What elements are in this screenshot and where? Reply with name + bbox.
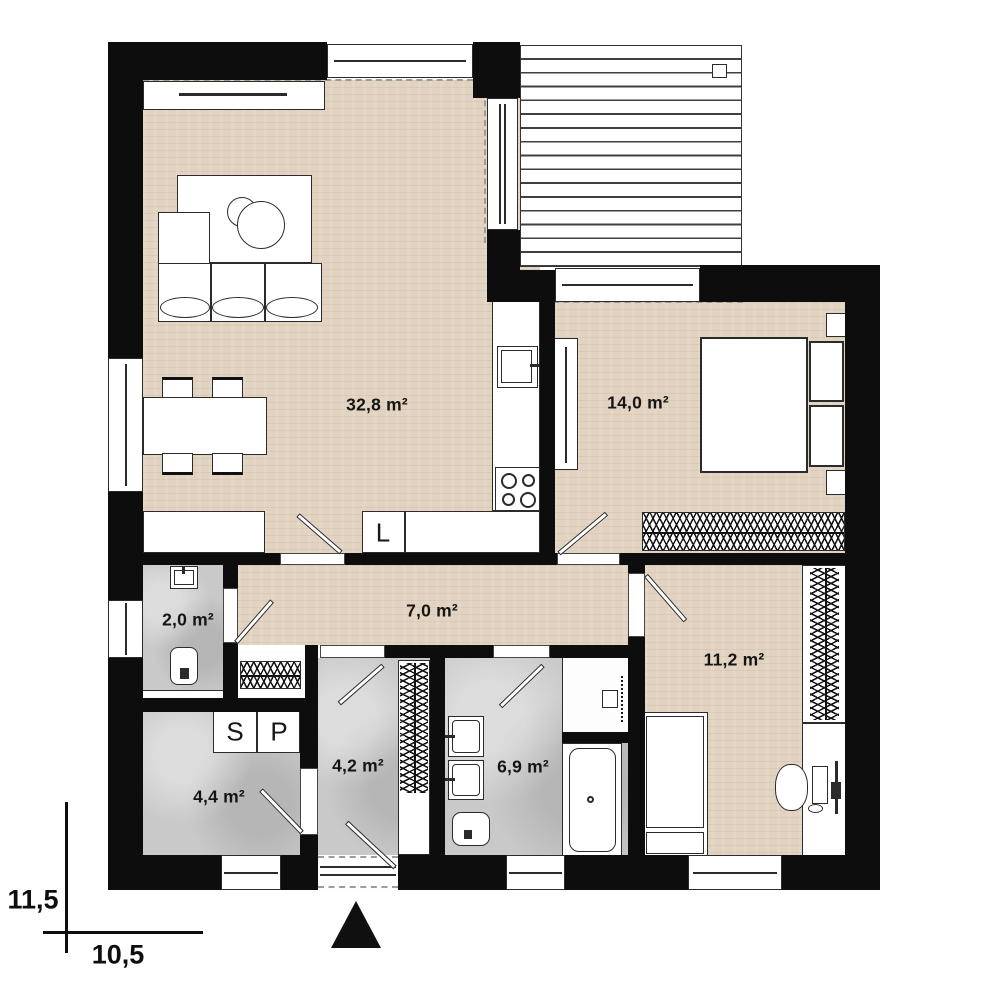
desk-chair xyxy=(775,764,808,811)
sideboard xyxy=(143,511,265,553)
bath-tap-icon xyxy=(445,778,455,781)
dining-chair xyxy=(212,377,243,399)
wardrobe-door-line xyxy=(565,347,567,463)
wall xyxy=(300,702,318,768)
wall xyxy=(628,637,645,875)
entry-wardrobe-hanging xyxy=(400,663,428,793)
stove-burner-icon xyxy=(520,492,536,508)
room-area-label: 14,0 m² xyxy=(607,393,669,414)
room-area-label: 4,2 m² xyxy=(332,756,384,777)
sofa-cushion xyxy=(266,297,318,318)
wall xyxy=(345,553,557,565)
window-glass xyxy=(125,364,127,485)
window xyxy=(108,358,143,492)
wall xyxy=(473,42,520,98)
wall xyxy=(620,553,845,565)
stove-burner-icon xyxy=(501,473,517,489)
wall xyxy=(540,300,555,553)
door-opening xyxy=(280,553,345,565)
room-area-label: 11,2 m² xyxy=(704,650,765,671)
rug-centerline xyxy=(643,532,844,534)
window xyxy=(688,855,782,890)
kitchen-counter-bottom xyxy=(405,511,540,553)
wc-toilet xyxy=(170,647,198,685)
bedroom-rug xyxy=(642,512,845,551)
window-glass xyxy=(509,872,561,874)
bath-sink-basin xyxy=(452,764,480,796)
window-glass xyxy=(334,60,467,62)
bath-toilet xyxy=(452,812,490,846)
radiator-pipe-icon xyxy=(621,676,623,722)
fridge-label: L xyxy=(376,518,390,549)
wall xyxy=(108,698,318,712)
wall xyxy=(223,565,238,588)
window xyxy=(555,268,700,302)
bath-sink-basin xyxy=(452,720,480,753)
desk-mouse xyxy=(808,804,823,813)
wc-toilet-flush xyxy=(180,668,189,679)
nightstand xyxy=(826,470,846,495)
window xyxy=(108,600,143,658)
wardrobe-rail xyxy=(414,663,416,793)
bathtub-drain-icon xyxy=(587,796,594,803)
door-opening xyxy=(223,588,238,643)
window xyxy=(506,855,565,890)
kitchen-tap-icon xyxy=(530,364,539,367)
sofa-divider xyxy=(210,264,212,321)
dining-chair xyxy=(212,453,243,475)
window-glass xyxy=(693,872,778,874)
north-arrow-icon xyxy=(331,901,381,948)
rug-centerline xyxy=(241,675,300,677)
wc-tap-icon xyxy=(182,566,185,574)
dimension-label-width: 10,5 xyxy=(92,940,145,971)
wardrobe-rail xyxy=(825,568,827,720)
dimension-line-horizontal xyxy=(43,931,203,934)
wall xyxy=(562,732,628,743)
wall xyxy=(300,835,318,855)
wall xyxy=(487,270,555,302)
dining-table xyxy=(143,397,267,455)
single-bed-foot-box xyxy=(646,832,704,854)
wall xyxy=(108,42,143,360)
bedroom-wardrobe xyxy=(553,338,578,470)
bath-toilet-flush xyxy=(464,830,472,839)
dimension-label-height: 11,5 xyxy=(7,885,58,916)
room-area-label: 32,8 m² xyxy=(346,395,408,416)
window xyxy=(327,44,473,78)
desk-lamp-knob xyxy=(831,782,841,799)
wall xyxy=(487,230,520,275)
door-opening xyxy=(300,768,318,835)
room-area-label: 2,0 m² xyxy=(162,610,214,631)
single-bed-mattress xyxy=(646,716,704,828)
porch-dash xyxy=(318,886,398,888)
room-area-label: 7,0 m² xyxy=(406,601,458,622)
plant-large-icon xyxy=(237,201,285,249)
door-opening xyxy=(320,645,385,658)
terrace-decking xyxy=(520,45,742,267)
wall xyxy=(700,265,880,302)
sofa-cushion xyxy=(160,297,210,318)
stove-burner-icon xyxy=(502,493,515,506)
dining-chair xyxy=(162,453,193,475)
wall xyxy=(430,658,445,855)
tv-icon xyxy=(179,93,287,96)
window-glass xyxy=(224,872,277,874)
room-area-label: 6,9 m² xyxy=(497,757,549,778)
sofa-divider xyxy=(264,264,266,321)
floor-plan: L S P xyxy=(0,0,984,992)
window-glass xyxy=(562,284,694,286)
coat-rack xyxy=(240,661,301,689)
nightstand xyxy=(826,313,846,337)
sofa-cushion xyxy=(212,297,264,318)
wall xyxy=(143,553,280,565)
wall xyxy=(845,265,880,890)
window-glass xyxy=(125,603,127,655)
wall xyxy=(385,645,493,658)
desk-monitor xyxy=(812,766,828,804)
roof-outline xyxy=(484,81,486,243)
stove-burner-icon xyxy=(522,474,535,487)
bed-pillow xyxy=(809,341,844,402)
door-opening xyxy=(493,645,550,658)
dining-chair xyxy=(162,377,193,399)
door-opening xyxy=(628,573,645,637)
window-glass xyxy=(504,104,506,224)
washer-label: P xyxy=(270,717,287,748)
double-bed-mattress xyxy=(700,337,808,473)
room-area-label: 4,4 m² xyxy=(193,787,245,808)
wall xyxy=(108,490,143,602)
bed-pillow xyxy=(809,405,844,467)
wall xyxy=(305,645,318,702)
porch-step xyxy=(320,874,396,876)
window-glass xyxy=(499,104,501,224)
terrace-sliding-door xyxy=(487,98,518,230)
bath-tap-icon xyxy=(445,735,455,738)
window xyxy=(221,855,281,890)
wall xyxy=(223,643,238,702)
door-opening xyxy=(557,553,620,565)
kitchen-sink-basin xyxy=(501,350,532,383)
towel-radiator xyxy=(602,690,618,708)
bathroom-niche-floor xyxy=(562,658,628,732)
kids-wardrobe-hanging xyxy=(810,568,839,720)
porch-step xyxy=(320,866,396,868)
sofa-chaise xyxy=(158,212,210,265)
terrace-drain xyxy=(712,64,727,78)
dryer-label: S xyxy=(226,717,243,748)
